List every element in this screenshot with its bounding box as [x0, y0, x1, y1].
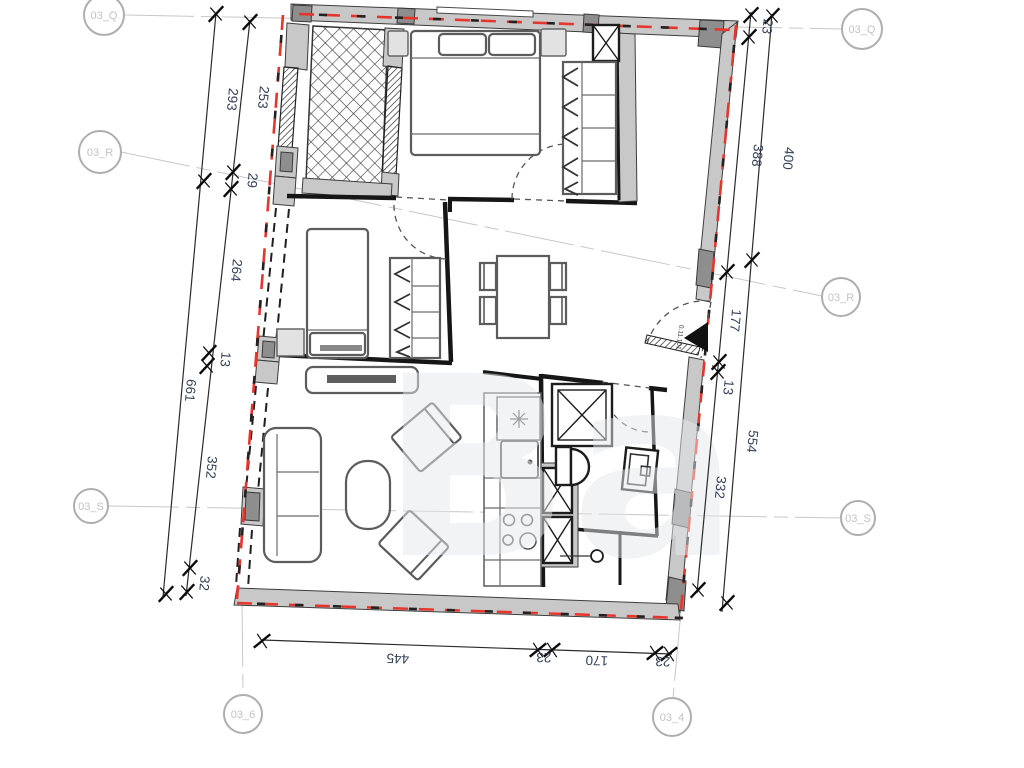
dimension-label: 13 [720, 379, 736, 396]
floor-plan-page: 0.11.101 [0, 0, 1024, 768]
dimension-label: 32 [196, 575, 212, 591]
dining-chair [550, 297, 566, 324]
dimension-label: 177 [727, 308, 744, 332]
dimension-label: 661 [182, 379, 199, 403]
svg-text:03_Q: 03_Q [91, 10, 118, 22]
watermark: Ba [380, 323, 739, 614]
dimension-label: 293 [224, 88, 241, 112]
dimension-label: 388 [749, 143, 766, 167]
grid-marker: 03_R [79, 131, 121, 173]
dimension-label: 29 [244, 172, 260, 188]
dimension-label: 13 [217, 351, 233, 367]
dimension-label: 23 [536, 650, 552, 666]
window-loggia-left [278, 67, 298, 150]
dining-chair [480, 297, 496, 324]
grid-marker: 03_Q [842, 9, 882, 49]
dimension-label: 253 [255, 86, 272, 110]
nightstand [541, 29, 566, 56]
dimension-label: 264 [228, 259, 245, 283]
dimension-label: 23 [655, 654, 671, 670]
floor-plan-drawing: 0.11.101 [0, 0, 1024, 768]
svg-text:03_S: 03_S [845, 513, 871, 525]
dimension-label: 170 [585, 653, 608, 669]
bedroom1 [388, 29, 616, 195]
svg-text:03_R: 03_R [87, 147, 113, 159]
dining-chair [550, 263, 566, 290]
loggia-hatch [306, 26, 388, 184]
dimension-label: 445 [386, 651, 409, 667]
svg-text:03_S: 03_S [78, 501, 104, 513]
dimension-label: 352 [203, 456, 220, 480]
grid-marker: 03_S [74, 489, 108, 523]
wardrobe-bedroom1 [563, 62, 616, 195]
door-arc-bedroom2 [394, 205, 448, 259]
bed-pillow [320, 345, 362, 351]
dimension-label: 332 [712, 475, 729, 499]
grid-marker: 03_S [841, 501, 875, 535]
dimension-label: 23 [759, 18, 776, 35]
grid-marker: 03_6 [224, 695, 262, 733]
nightstand [388, 31, 408, 56]
svg-text:03_4: 03_4 [660, 712, 684, 724]
dimension-label: 554 [744, 429, 761, 453]
dining-chair [480, 263, 496, 290]
grid-marker: 03_R [822, 278, 860, 316]
dimension-label: 400 [780, 146, 797, 170]
grid-marker: 03_4 [653, 698, 691, 736]
svg-text:03_6: 03_6 [231, 709, 255, 721]
svg-text:03_R: 03_R [828, 292, 854, 304]
sofa [264, 428, 321, 562]
window-living-2 [236, 528, 240, 586]
svg-text:03_Q: 03_Q [849, 24, 876, 36]
nightstand [277, 329, 304, 356]
grid-marker: 03_Q [84, 0, 124, 35]
